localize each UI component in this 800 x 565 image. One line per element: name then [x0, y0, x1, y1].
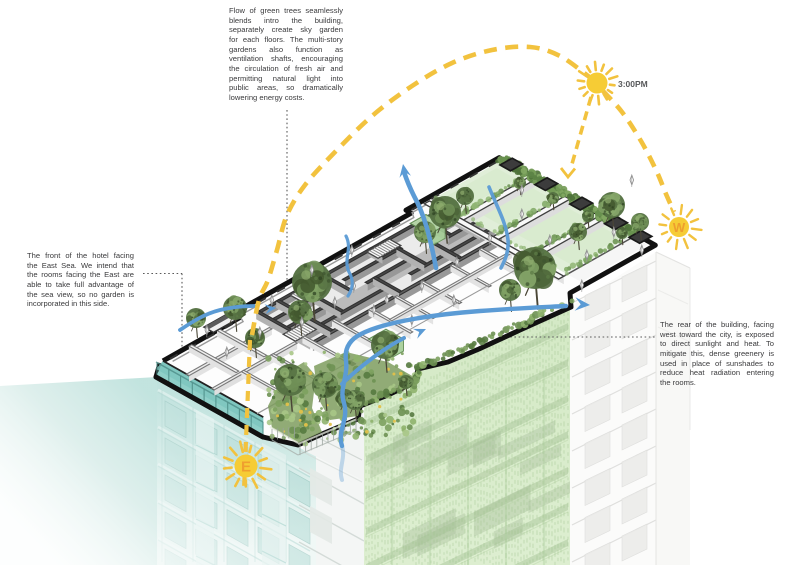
svg-text:E: E — [241, 459, 251, 476]
svg-text:3:00PM: 3:00PM — [618, 79, 648, 89]
svg-text:W: W — [673, 220, 686, 235]
